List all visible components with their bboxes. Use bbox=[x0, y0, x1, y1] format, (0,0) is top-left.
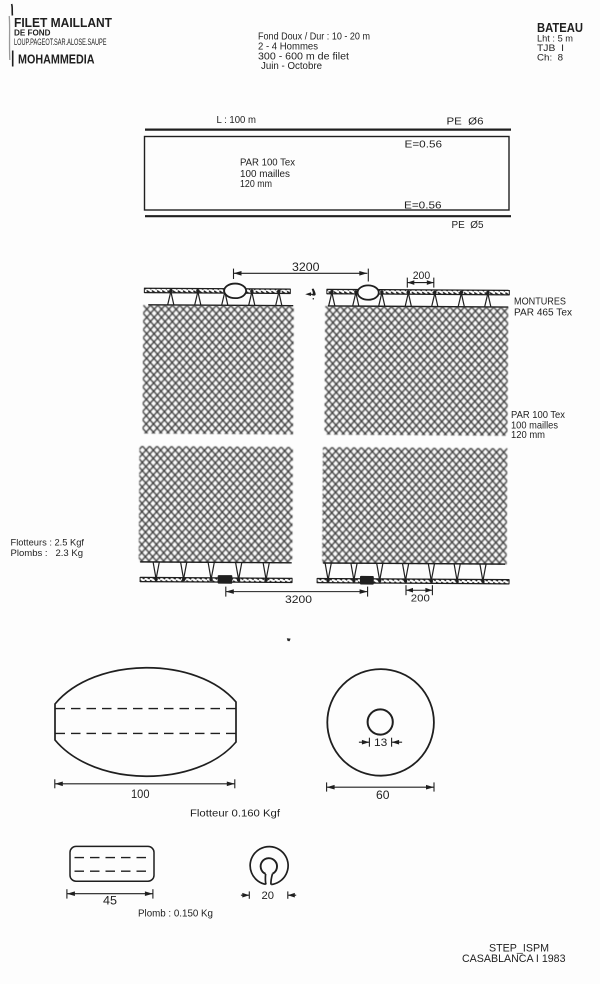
svg-text:Flotteur 0.160 Kgf: Flotteur 0.160 Kgf bbox=[190, 808, 280, 820]
svg-text:MONTURES: MONTURES bbox=[514, 297, 566, 308]
svg-text:Plomb : 0.150 Kg: Plomb : 0.150 Kg bbox=[138, 908, 213, 920]
svg-text:3200: 3200 bbox=[285, 594, 312, 606]
svg-text:PAR 100 Tex: PAR 100 Tex bbox=[240, 158, 295, 169]
svg-text:120 mm: 120 mm bbox=[511, 430, 545, 441]
svg-text:PAR 465 Tex: PAR 465 Tex bbox=[514, 308, 572, 319]
svg-text:200: 200 bbox=[413, 270, 431, 282]
svg-text:20: 20 bbox=[262, 890, 275, 902]
svg-text:TJB I: TJB I bbox=[537, 43, 564, 53]
svg-text:CASABLANCA I 1983: CASABLANCA I 1983 bbox=[462, 953, 566, 965]
svg-text:LOUP.PAGEOT.SAR.ALOSE.SAUPE: LOUP.PAGEOT.SAR.ALOSE.SAUPE bbox=[14, 37, 107, 47]
svg-text:Juin - Octobre: Juin - Octobre bbox=[261, 61, 322, 72]
svg-text:3200: 3200 bbox=[292, 262, 320, 274]
svg-text:Ch: 8: Ch: 8 bbox=[537, 53, 563, 63]
svg-text:MOHAMMEDIA: MOHAMMEDIA bbox=[18, 51, 95, 66]
svg-text:120 mm: 120 mm bbox=[240, 179, 272, 190]
svg-text:100: 100 bbox=[131, 789, 150, 801]
svg-text:60: 60 bbox=[376, 788, 390, 802]
svg-text:L : 100 m: L : 100 m bbox=[217, 114, 257, 126]
svg-text:PE Ø6: PE Ø6 bbox=[447, 116, 484, 128]
svg-text:Flotteurs : 2.5 Kgf: Flotteurs : 2.5 Kgf bbox=[11, 537, 85, 547]
svg-text:E=0.56: E=0.56 bbox=[404, 199, 442, 211]
svg-text:PAR 100 Tex: PAR 100 Tex bbox=[511, 410, 565, 421]
svg-text:200: 200 bbox=[411, 592, 430, 604]
svg-text:Plombs : 2.3 Kg: Plombs : 2.3 Kg bbox=[11, 548, 84, 558]
svg-text:45: 45 bbox=[103, 894, 117, 908]
svg-text:13: 13 bbox=[374, 737, 387, 749]
svg-text:PE Ø5: PE Ø5 bbox=[452, 219, 484, 231]
svg-text:E=0.56: E=0.56 bbox=[405, 139, 443, 151]
svg-text:Lht : 5 m: Lht : 5 m bbox=[537, 33, 573, 43]
